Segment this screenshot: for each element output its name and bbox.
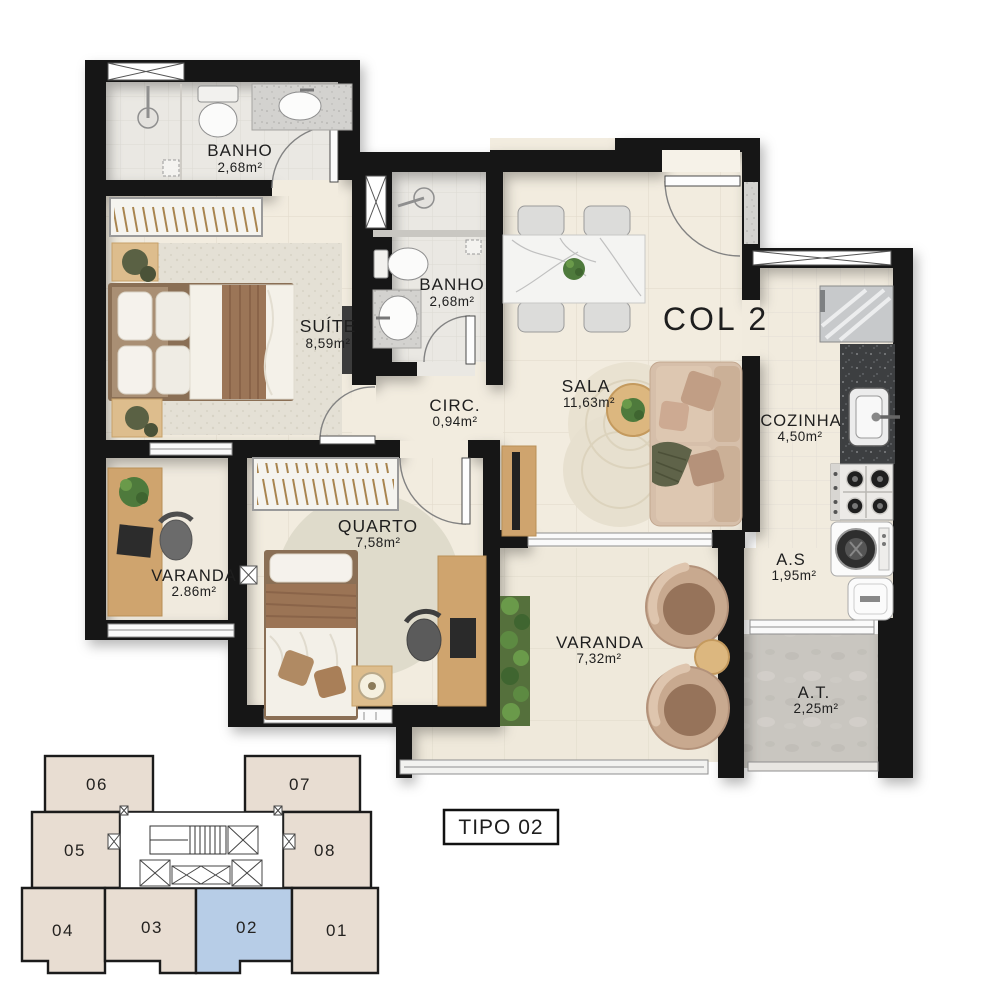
lounge-chair-2 xyxy=(647,667,729,749)
key-label-02: 02 xyxy=(236,918,258,937)
lounge-chair-1 xyxy=(646,566,728,648)
room-area-banho-1: 2,68m² xyxy=(217,160,262,175)
room-label-varanda-2: VARANDA xyxy=(556,633,644,652)
room-area-varanda-2: 7,32m² xyxy=(576,651,621,666)
shaft-box-icon xyxy=(240,566,257,584)
room-area-as: 1,95m² xyxy=(771,568,816,583)
type-label: TIPO 02 xyxy=(458,816,543,839)
room-label-cozinha: COZINHA xyxy=(760,412,841,430)
shaft-icon xyxy=(283,834,295,849)
room-area-cozinha: 4,50m² xyxy=(777,429,822,444)
shaft-icon xyxy=(108,834,120,849)
room-label-circ: CIRC. xyxy=(429,396,480,415)
type-label-box: TIPO 02 xyxy=(444,810,558,844)
shaft-icon xyxy=(120,806,128,815)
room-label-suite: SUÍTE xyxy=(300,316,357,336)
room-area-quarto: 7,58m² xyxy=(355,535,400,550)
sink-icon xyxy=(279,92,321,120)
washer-icon xyxy=(831,522,893,576)
tv-icon xyxy=(512,452,520,530)
duct-icon xyxy=(172,866,230,884)
floor-plan-page: BANHO 2,68m² SUÍTE 8,59m² BANHO 2,68m² C… xyxy=(0,0,1000,1000)
desk-chair xyxy=(407,619,441,661)
room-label-banho-1: BANHO xyxy=(207,141,272,160)
tv-console xyxy=(502,446,536,536)
toilet-icon xyxy=(198,86,238,137)
room-area-banho-2: 2,68m² xyxy=(429,294,474,309)
key-label-08: 08 xyxy=(314,841,336,860)
room-label-as: A.S xyxy=(776,551,806,569)
room-area-sala: 11,63m² xyxy=(563,395,615,410)
room-area-circ: 0,94m² xyxy=(432,414,477,429)
shaft-window-icon xyxy=(366,176,386,228)
suite-bed xyxy=(108,283,294,401)
quarto-closet xyxy=(253,458,398,510)
monitor-icon xyxy=(450,618,476,658)
room-label-varanda-1: VARANDA xyxy=(151,567,237,585)
drain-icon xyxy=(163,160,179,176)
quarto-bed xyxy=(264,550,358,720)
key-label-07: 07 xyxy=(289,775,311,794)
room-label-banho-2: BANHO xyxy=(419,275,484,294)
suite-closet xyxy=(110,198,262,236)
elevator-icon xyxy=(140,860,170,886)
stove-icon xyxy=(831,464,893,520)
key-label-03: 03 xyxy=(141,918,163,937)
room-label-quarto: QUARTO xyxy=(338,516,418,536)
key-plan: 06 07 05 08 04 03 02 01 xyxy=(22,756,378,973)
fridge-icon xyxy=(820,286,893,342)
room-area-suite: 8,59m² xyxy=(305,336,350,351)
room-label-at: A.T. xyxy=(798,684,830,702)
suite-nightstand-top xyxy=(112,243,158,282)
laptop-icon xyxy=(117,524,154,557)
quarto-lamp-table xyxy=(352,666,392,706)
shaft-icon xyxy=(274,806,282,815)
sofa xyxy=(650,362,742,526)
key-plan-core xyxy=(108,806,295,888)
suite-nightstand-bottom xyxy=(112,399,162,437)
water-tank-icon xyxy=(848,578,893,620)
key-label-06: 06 xyxy=(86,775,108,794)
room-area-at: 2,25m² xyxy=(793,701,838,716)
desk-chair xyxy=(160,520,192,560)
drain-icon xyxy=(466,240,481,254)
kitchen-window-icon xyxy=(753,251,891,265)
column-label: COL 2 xyxy=(663,301,769,337)
entry-pillar xyxy=(744,182,758,244)
key-label-01: 01 xyxy=(326,921,348,940)
floor-plan-drawing: BANHO 2,68m² SUÍTE 8,59m² BANHO 2,68m² C… xyxy=(0,0,1000,1000)
banho1-window-icon xyxy=(108,63,184,80)
key-label-04: 04 xyxy=(52,921,74,940)
room-area-varanda-1: 2.86m² xyxy=(171,584,216,599)
elevator-icon xyxy=(232,860,262,886)
kitchen-counter xyxy=(840,344,900,464)
plant-wall xyxy=(500,596,530,726)
elevator-icon xyxy=(228,826,258,854)
key-label-05: 05 xyxy=(64,841,86,860)
room-label-sala: SALA xyxy=(562,376,611,396)
dining-table xyxy=(503,235,645,303)
